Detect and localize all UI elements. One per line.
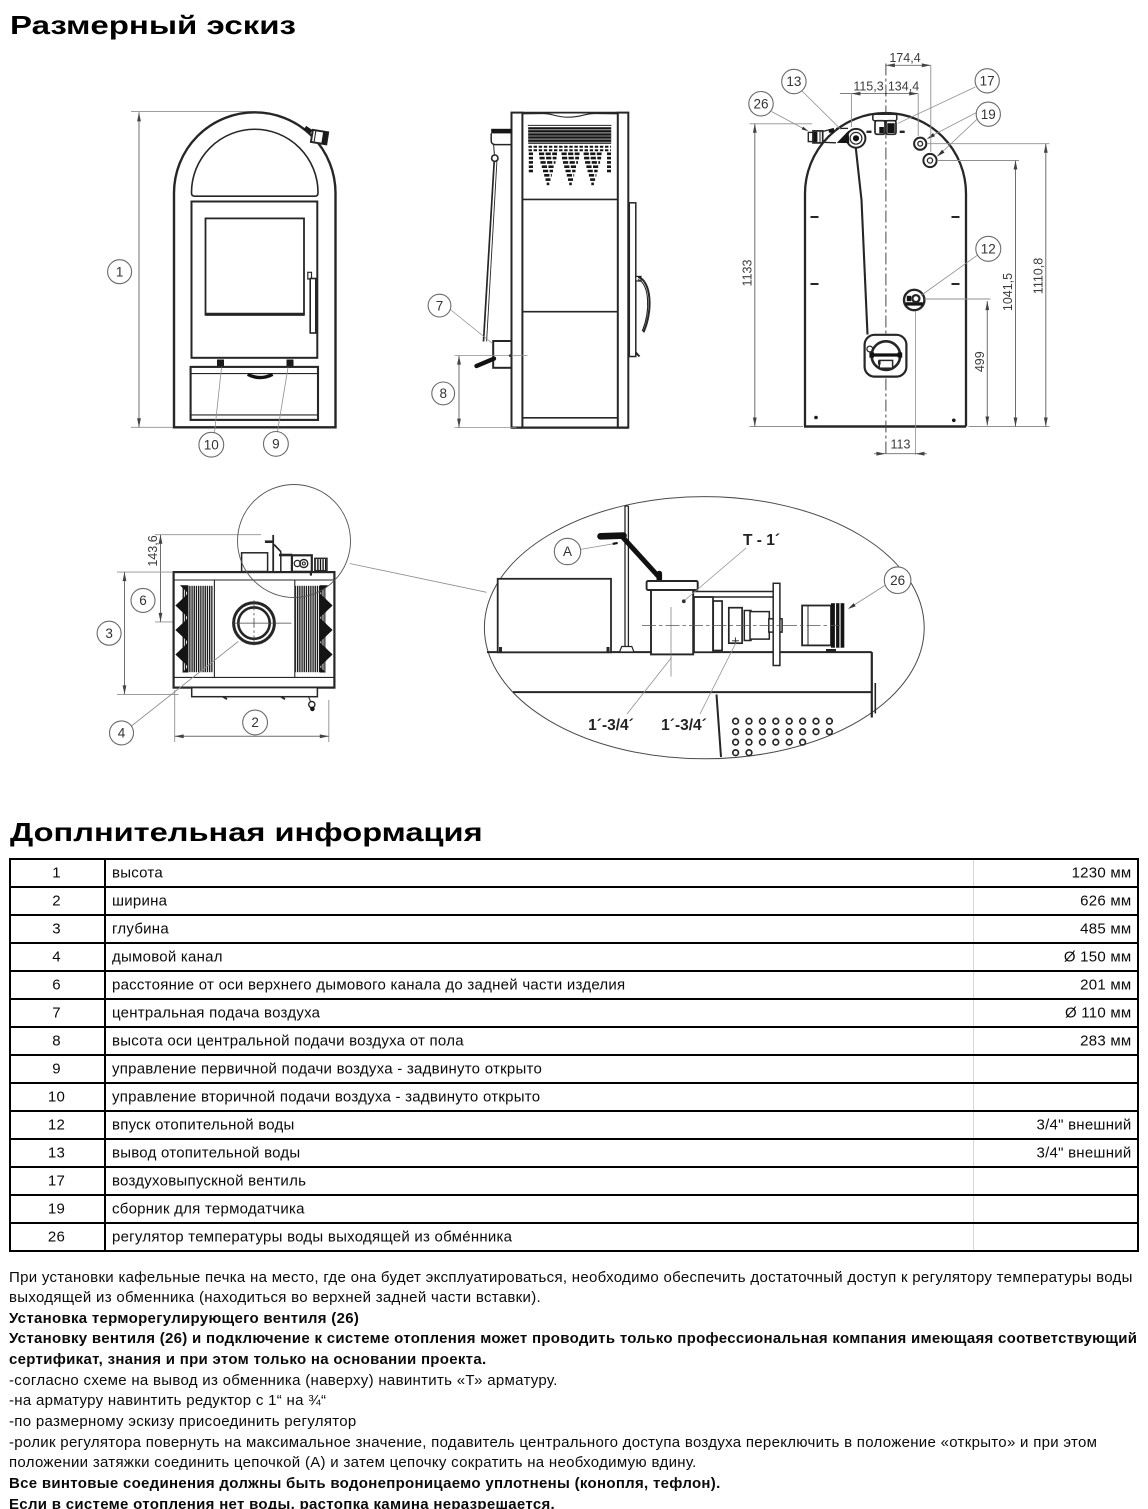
svg-text:8: 8: [439, 386, 447, 401]
svg-text:1´-3/4´: 1´-3/4´: [588, 717, 634, 734]
svg-text:1133: 1133: [740, 260, 754, 287]
svg-text:7: 7: [436, 298, 444, 313]
svg-text:1041,5: 1041,5: [1001, 273, 1015, 311]
svg-text:499: 499: [973, 351, 987, 372]
svg-text:143,6: 143,6: [146, 535, 160, 566]
svg-text:26: 26: [890, 573, 905, 588]
svg-text:1: 1: [116, 264, 124, 279]
svg-text:T - 1´: T - 1´: [743, 532, 780, 549]
svg-text:10: 10: [204, 437, 219, 452]
svg-text:134,4: 134,4: [888, 80, 919, 94]
svg-text:17: 17: [980, 74, 995, 89]
svg-text:113: 113: [891, 438, 911, 452]
svg-text:26: 26: [753, 96, 768, 111]
svg-text:9: 9: [272, 437, 280, 452]
svg-text:174,4: 174,4: [889, 51, 920, 65]
svg-text:2: 2: [251, 715, 259, 730]
svg-text:19: 19: [981, 107, 996, 122]
svg-text:1110,8: 1110,8: [1031, 258, 1045, 294]
svg-text:6: 6: [139, 593, 147, 608]
svg-text:12: 12: [981, 242, 996, 257]
svg-text:4: 4: [118, 726, 126, 741]
svg-text:A: A: [563, 544, 572, 559]
svg-text:1´-3/4´: 1´-3/4´: [661, 717, 707, 734]
svg-text:115,3: 115,3: [853, 80, 883, 94]
svg-text:13: 13: [786, 74, 801, 89]
svg-text:3: 3: [105, 626, 113, 641]
